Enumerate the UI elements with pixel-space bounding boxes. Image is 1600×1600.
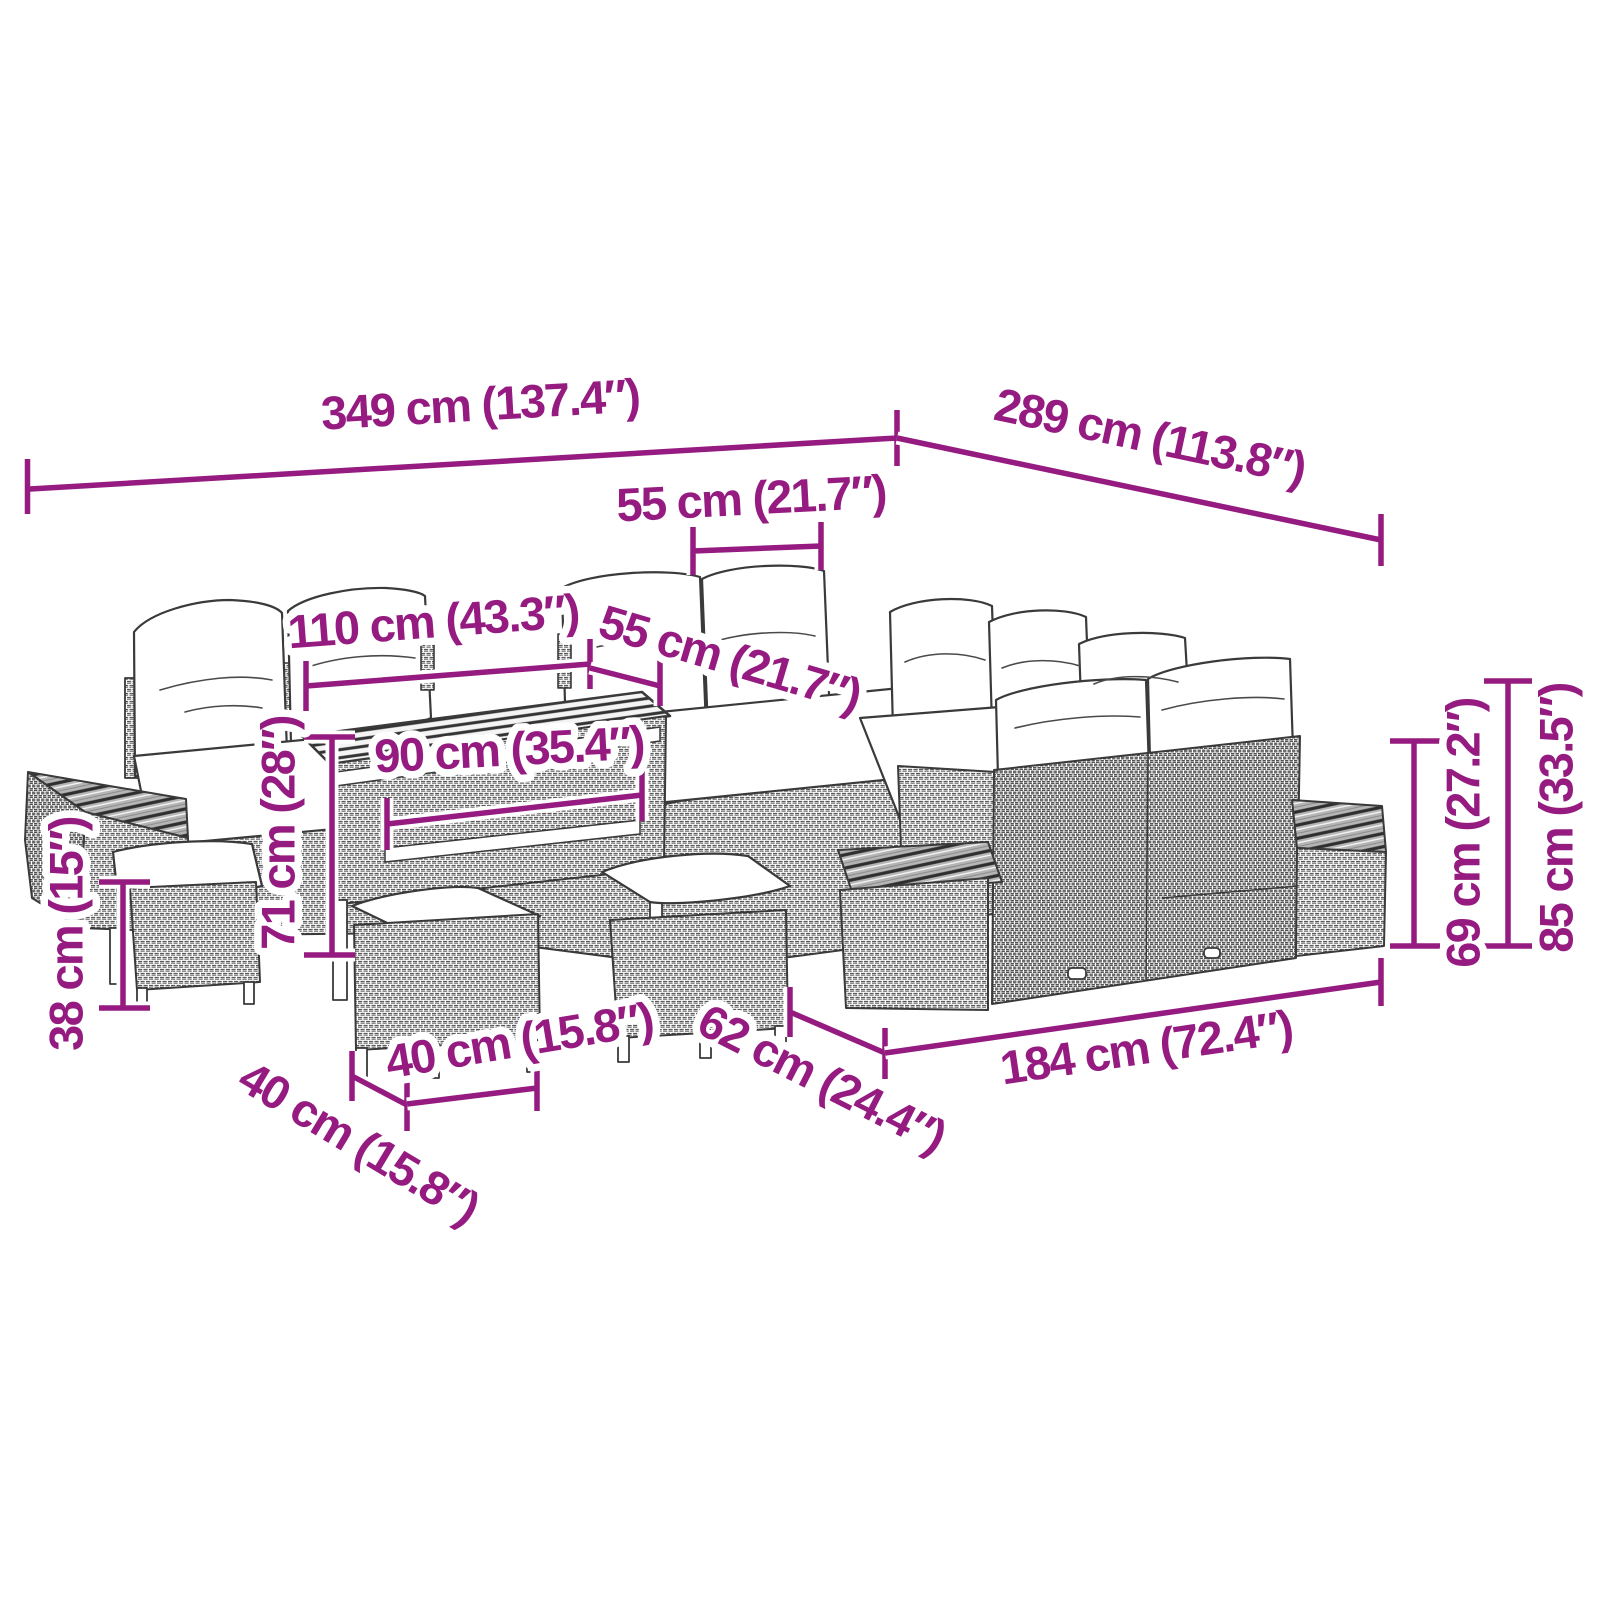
svg-text:71 cm (28″): 71 cm (28″) xyxy=(252,716,305,950)
svg-text:38 cm (15″): 38 cm (15″) xyxy=(40,817,93,1051)
svg-text:85 cm (33.5″): 85 cm (33.5″) xyxy=(1530,683,1583,953)
svg-text:69 cm (27.2″): 69 cm (27.2″) xyxy=(1437,698,1490,968)
